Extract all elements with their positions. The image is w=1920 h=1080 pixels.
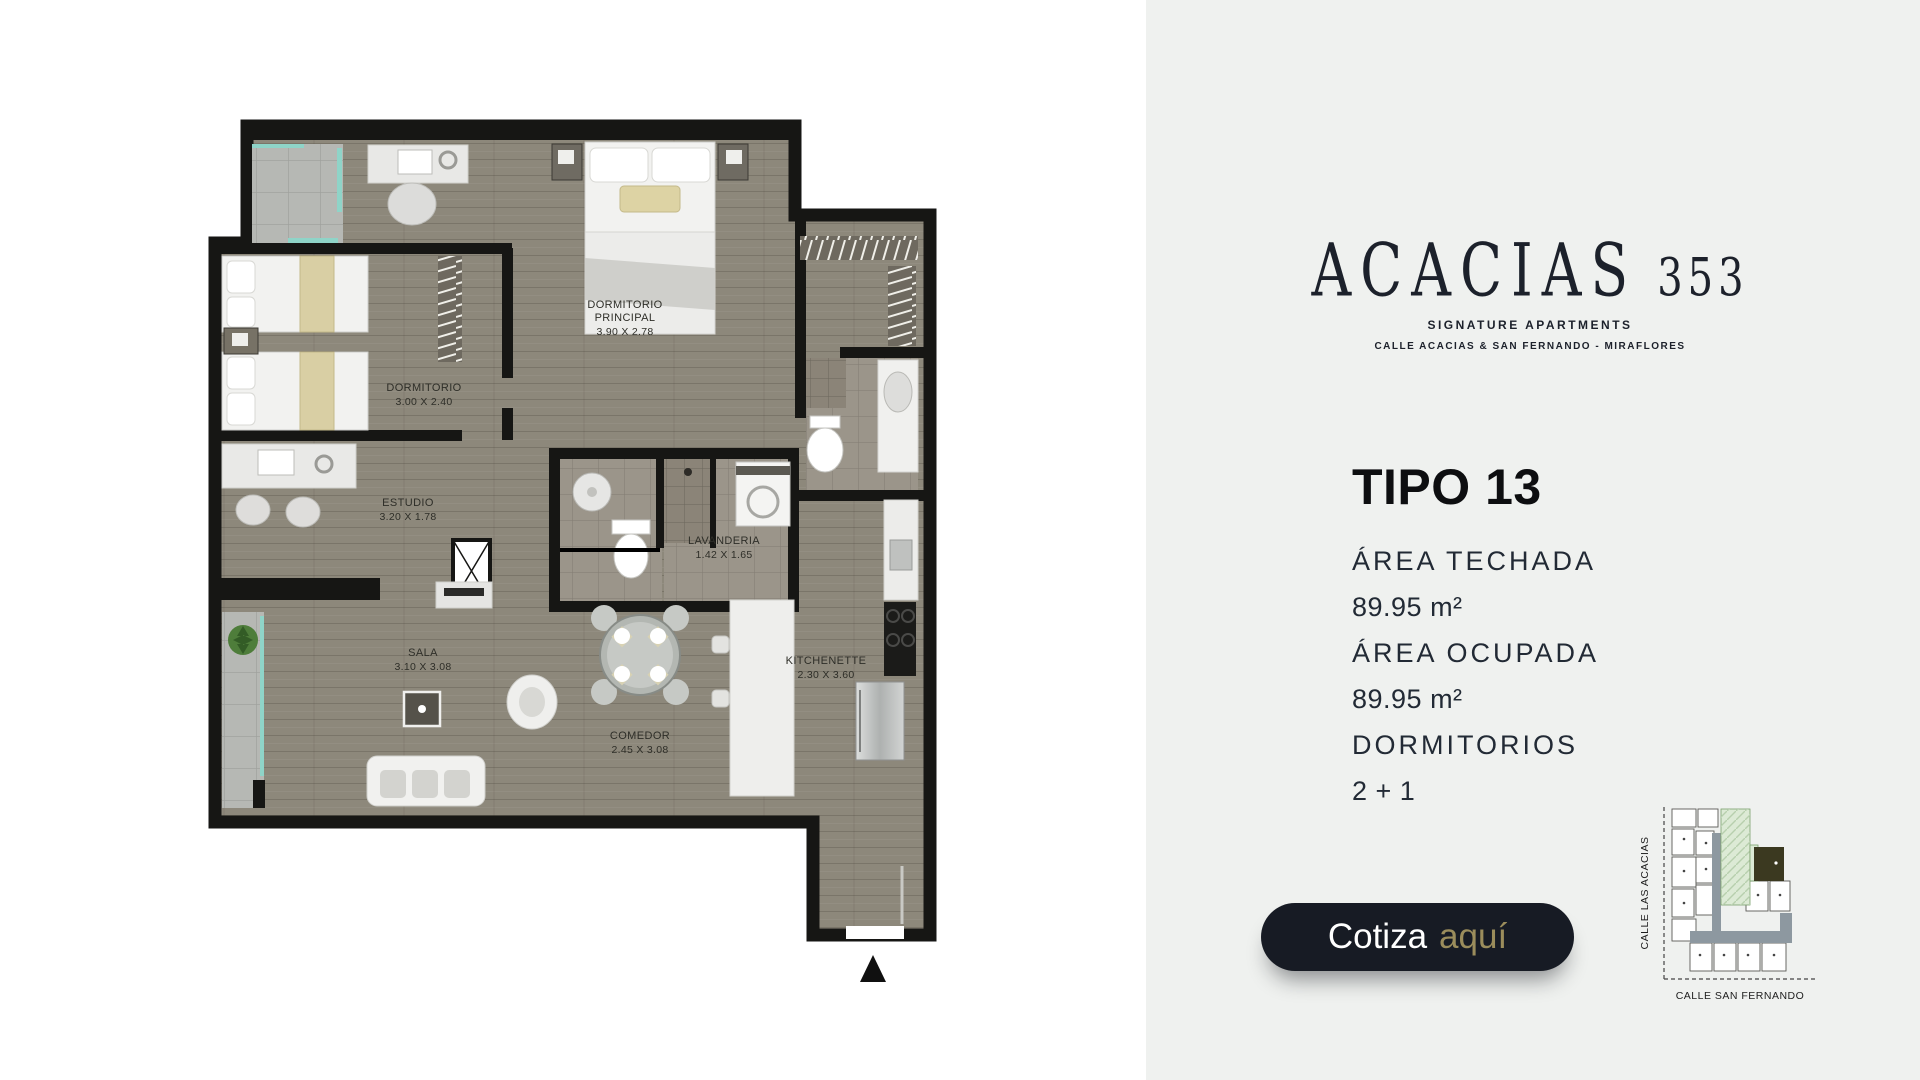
spec-value-dormitorios: 2 + 1 bbox=[1352, 768, 1599, 814]
cta-text-accent: aquí bbox=[1439, 917, 1507, 957]
room-label-sala: SALA bbox=[408, 647, 438, 659]
brand-tagline: SIGNATURE APARTMENTS bbox=[1310, 318, 1750, 332]
location-map: CALLE LAS ACACIAS CALLE SAN FERNANDO bbox=[1628, 793, 1828, 1013]
spec-value-area-ocupada: 89.95 m² bbox=[1352, 676, 1599, 722]
spec-value-area-techada: 89.95 m² bbox=[1352, 584, 1599, 630]
svg-text:2.45 X 3.08: 2.45 X 3.08 bbox=[611, 744, 668, 756]
spec-label-area-techada: ÁREA TECHADA bbox=[1352, 538, 1599, 584]
terrace bbox=[252, 144, 343, 243]
map-highlighted-unit bbox=[1754, 847, 1784, 881]
svg-text:1.42 X 1.65: 1.42 X 1.65 bbox=[695, 549, 752, 561]
brand-name: ACACIAS bbox=[1311, 228, 1637, 312]
cotiza-button[interactable]: Cotiza aquí bbox=[1261, 903, 1574, 971]
brand-number: 353 bbox=[1657, 248, 1748, 309]
svg-text:3.00 X 2.40: 3.00 X 2.40 bbox=[395, 396, 452, 408]
street-label-left: CALLE LAS ACACIAS bbox=[1639, 837, 1651, 950]
room-label-kitchenette: KITCHENETTE bbox=[786, 655, 867, 667]
brand-logo: ACACIAS 353 SIGNATURE APARTMENTS CALLE A… bbox=[1310, 228, 1750, 352]
room-label-lavanderia: LAVANDERIA bbox=[688, 535, 760, 547]
dining-set bbox=[591, 605, 689, 705]
spec-label-area-ocupada: ÁREA OCUPADA bbox=[1352, 630, 1599, 676]
street-label-bottom: CALLE SAN FERNANDO bbox=[1676, 990, 1805, 1002]
floor-plan-image: DORMITORIO PRINCIPAL 3.90 X 2.78 DORMITO… bbox=[0, 0, 1146, 1080]
svg-text:3.20 X 1.78: 3.20 X 1.78 bbox=[379, 511, 436, 523]
room-label-dormitorio-principal: DORMITORIO bbox=[587, 299, 662, 311]
svg-text:3.90 X 2.78: 3.90 X 2.78 bbox=[596, 326, 653, 338]
cta-text-primary: Cotiza bbox=[1328, 917, 1427, 957]
unit-title: TIPO 13 bbox=[1352, 458, 1542, 516]
svg-text:3.10 X 3.08: 3.10 X 3.08 bbox=[394, 661, 451, 673]
unit-specs: ÁREA TECHADA 89.95 m² ÁREA OCUPADA 89.95… bbox=[1352, 538, 1599, 814]
floor-plan-section: DORMITORIO PRINCIPAL 3.90 X 2.78 DORMITO… bbox=[0, 0, 1146, 1080]
washer bbox=[736, 462, 790, 526]
room-label-comedor: COMEDOR bbox=[610, 730, 670, 742]
brand-address: CALLE ACACIAS & SAN FERNANDO - MIRAFLORE… bbox=[1310, 341, 1750, 352]
entry-arrow-icon bbox=[860, 955, 886, 982]
page: DORMITORIO PRINCIPAL 3.90 X 2.78 DORMITO… bbox=[0, 0, 1920, 1080]
svg-text:2.30 X 3.60: 2.30 X 3.60 bbox=[797, 669, 854, 681]
spec-label-dormitorios: DORMITORIOS bbox=[1352, 722, 1599, 768]
room-label-estudio: ESTUDIO bbox=[382, 497, 434, 509]
balcony bbox=[222, 612, 265, 808]
svg-text:PRINCIPAL: PRINCIPAL bbox=[595, 312, 656, 324]
room-label-dormitorio: DORMITORIO bbox=[386, 382, 461, 394]
